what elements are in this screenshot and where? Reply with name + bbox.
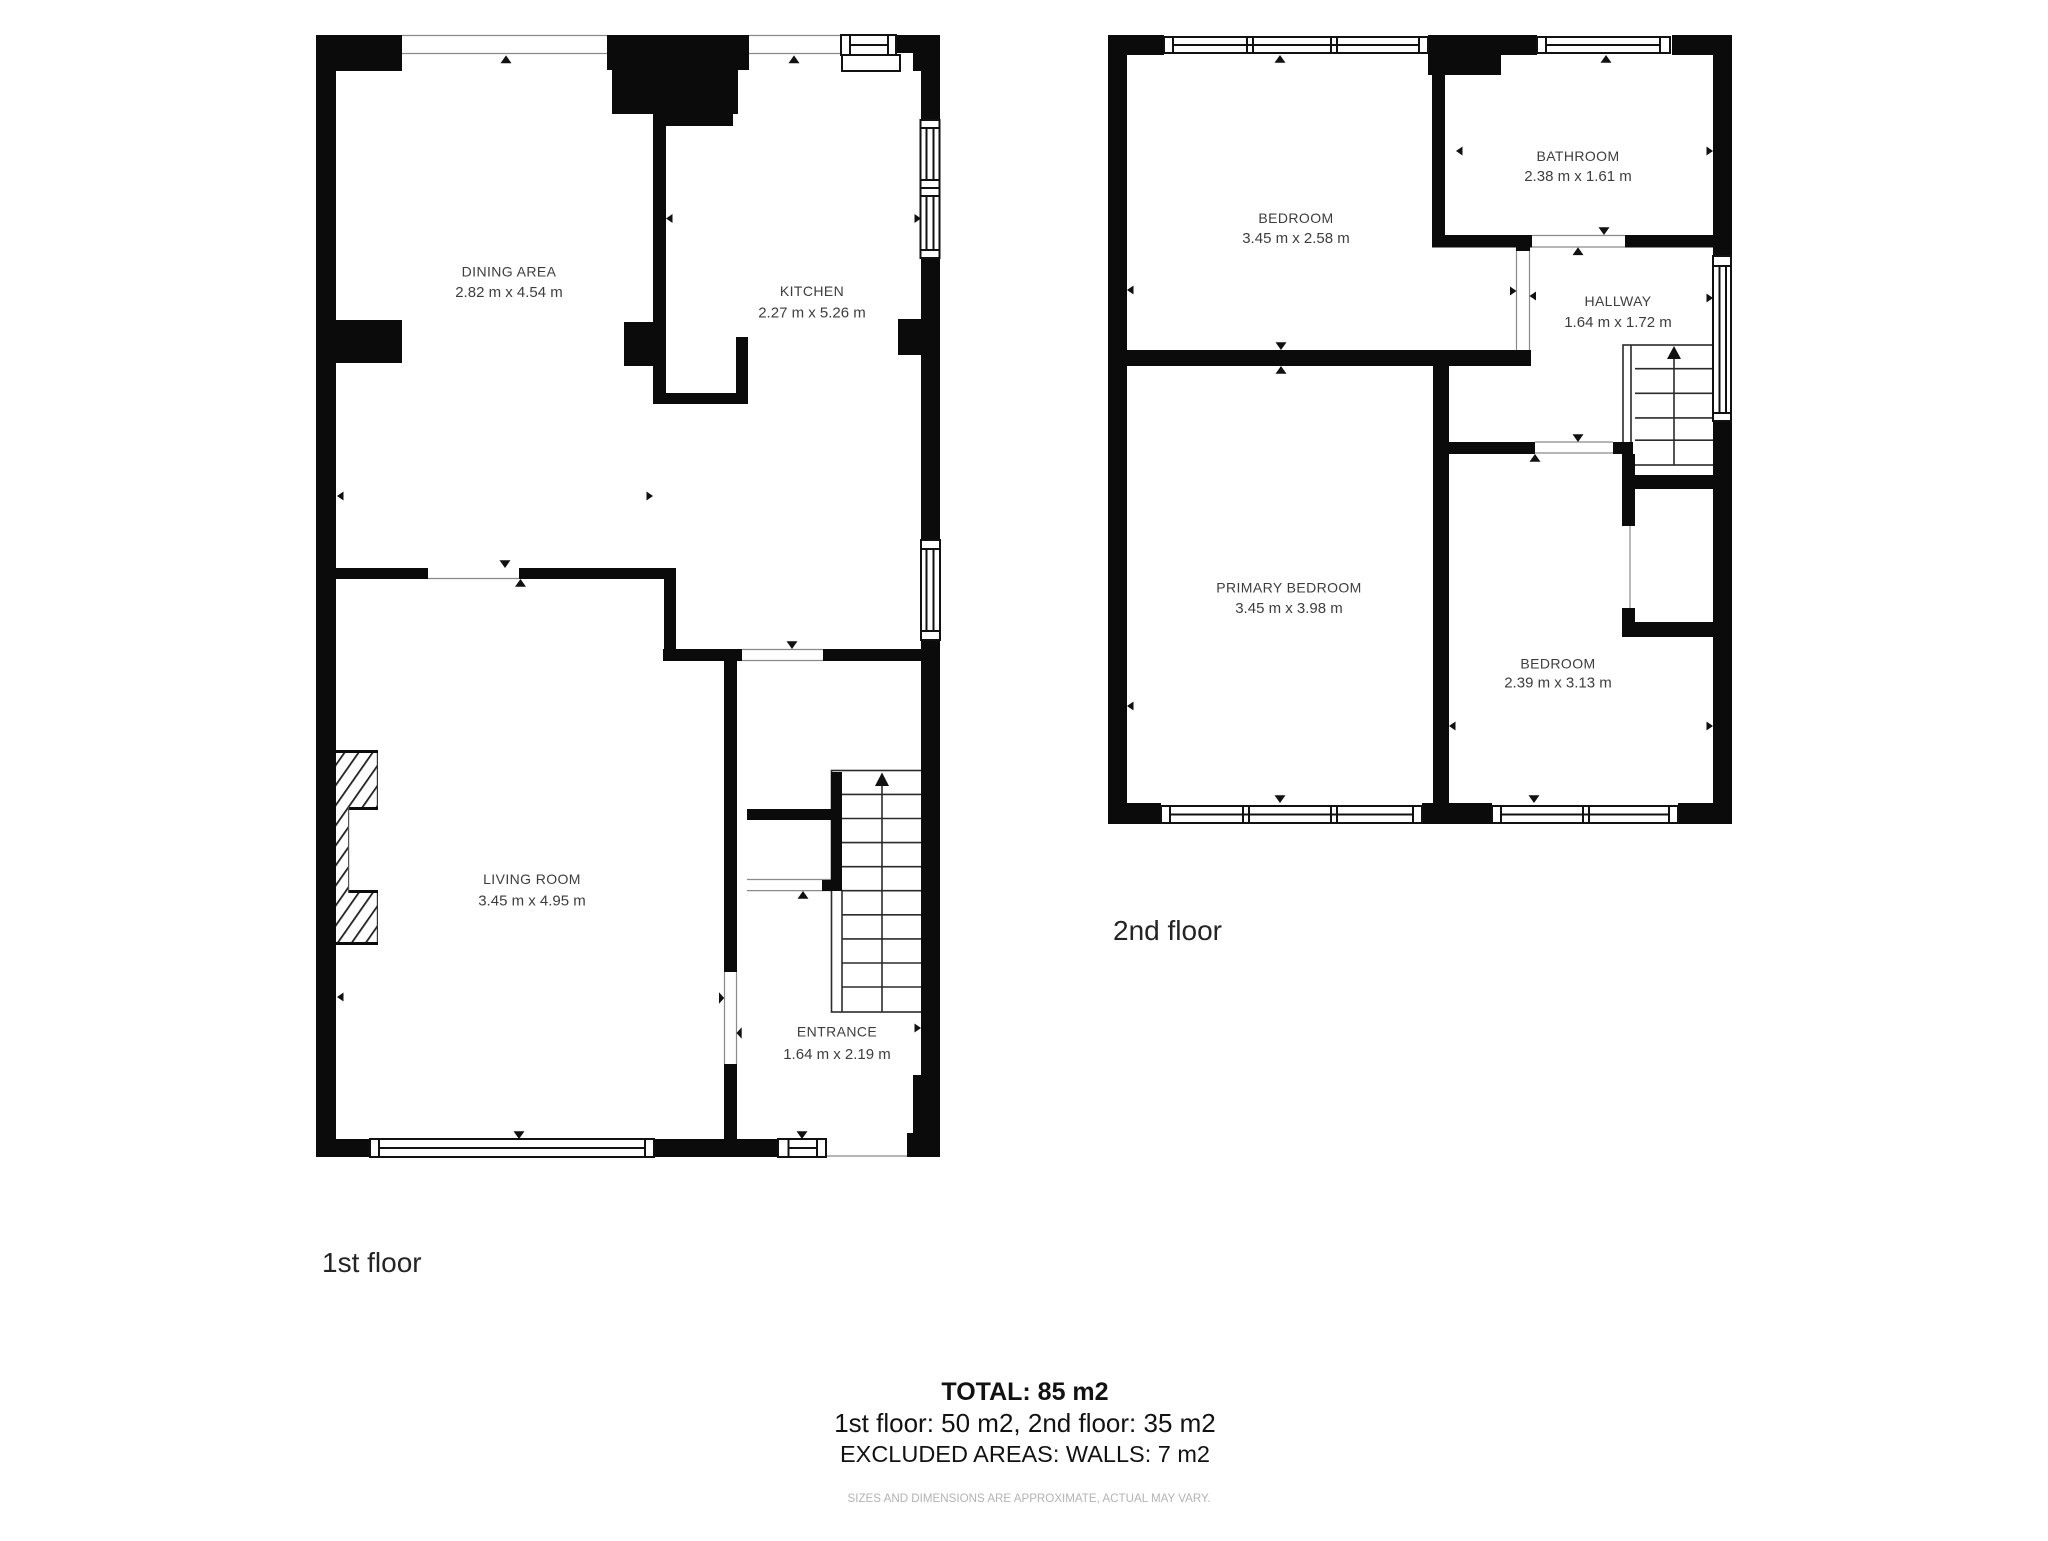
svg-text:ENTRANCE: ENTRANCE — [797, 1024, 877, 1040]
svg-text:3.45 m x 2.58 m: 3.45 m x 2.58 m — [1242, 230, 1350, 247]
svg-text:BATHROOM: BATHROOM — [1536, 148, 1619, 164]
svg-text:1st floor: 50 m2, 2nd floor: 3: 1st floor: 50 m2, 2nd floor: 35 m2 — [834, 1408, 1216, 1438]
svg-text:3.45 m x 3.98 m: 3.45 m x 3.98 m — [1235, 600, 1343, 617]
svg-text:2.38 m x 1.61 m: 2.38 m x 1.61 m — [1524, 168, 1632, 185]
svg-text:EXCLUDED AREAS: WALLS: 7 m2: EXCLUDED AREAS: WALLS: 7 m2 — [840, 1441, 1210, 1467]
svg-text:SIZES AND DIMENSIONS ARE APPRO: SIZES AND DIMENSIONS ARE APPROXIMATE, AC… — [848, 1492, 1211, 1505]
svg-text:BEDROOM: BEDROOM — [1520, 656, 1595, 672]
svg-text:DINING AREA: DINING AREA — [462, 264, 557, 280]
svg-text:2nd floor: 2nd floor — [1113, 915, 1222, 946]
svg-text:2.27 m x 5.26 m: 2.27 m x 5.26 m — [758, 305, 866, 322]
svg-text:BEDROOM: BEDROOM — [1258, 210, 1333, 226]
svg-text:TOTAL: 85 m2: TOTAL: 85 m2 — [941, 1378, 1108, 1406]
svg-text:1.64 m x 2.19 m: 1.64 m x 2.19 m — [783, 1046, 891, 1063]
svg-text:PRIMARY BEDROOM: PRIMARY BEDROOM — [1216, 579, 1362, 595]
svg-text:LIVING ROOM: LIVING ROOM — [483, 871, 581, 887]
svg-text:1.64 m x 1.72 m: 1.64 m x 1.72 m — [1564, 314, 1672, 331]
svg-text:1st floor: 1st floor — [322, 1247, 422, 1278]
svg-text:KITCHEN: KITCHEN — [780, 283, 844, 299]
svg-text:3.45 m x 4.95 m: 3.45 m x 4.95 m — [478, 893, 586, 910]
svg-text:2.39 m x 3.13 m: 2.39 m x 3.13 m — [1504, 675, 1612, 692]
svg-text:HALLWAY: HALLWAY — [1584, 293, 1651, 309]
svg-text:2.82 m x 4.54 m: 2.82 m x 4.54 m — [455, 284, 563, 301]
